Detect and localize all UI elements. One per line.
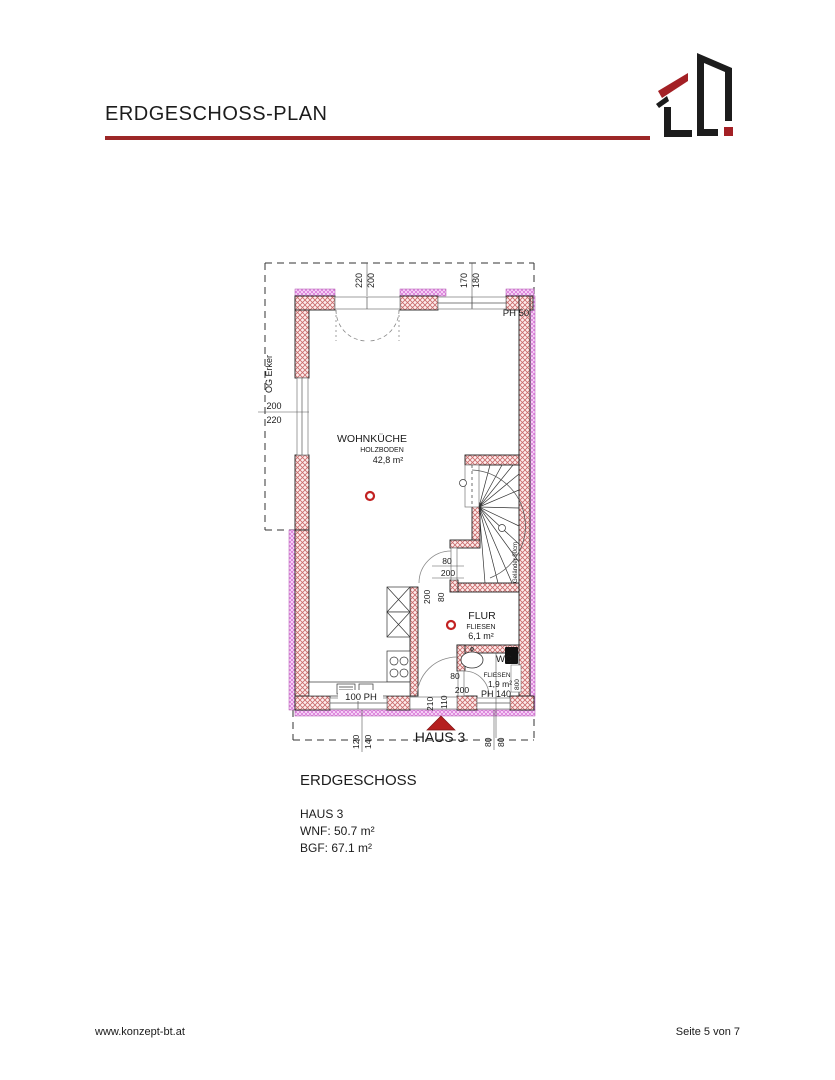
dim-wc-side: 800 xyxy=(514,679,521,690)
dim-bottom-4: 80 xyxy=(496,737,506,747)
title-rule xyxy=(105,136,650,140)
dim-top-win-2: 180 xyxy=(471,273,481,288)
logo-black-beam xyxy=(656,96,669,108)
dim-left-win-1: 200 xyxy=(266,401,281,411)
floor-plan: 220 200 170 180 PH 50 OG Erker 200 220 W… xyxy=(250,245,550,770)
entry-marker-triangle xyxy=(427,716,455,730)
dim-entry-2: 110 xyxy=(439,695,449,709)
dim-kitchen-ph: 100 PH xyxy=(345,692,377,703)
logo-red-beam xyxy=(658,73,688,98)
dim-bottom-3: 80 xyxy=(483,737,493,747)
room-flur-floor: FLIESEN xyxy=(466,624,495,631)
summary-bgf: BGF: 67.1 m² xyxy=(300,840,417,857)
room-wc-floor: FLIESEN xyxy=(483,672,510,679)
dim-top-door-1: 220 xyxy=(354,273,364,288)
room-flur-name: FLUR xyxy=(468,610,496,622)
logo-right-building xyxy=(697,53,732,136)
dim-bottom-1: 120 xyxy=(351,735,361,749)
summary-heading: ERDGESCHOSS xyxy=(300,772,417,789)
plan-summary: ERDGESCHOSS HAUS 3 WNF: 50.7 m² BGF: 67.… xyxy=(300,772,417,857)
summary-wnf: WNF: 50.7 m² xyxy=(300,823,417,840)
dim-top-win-1: 170 xyxy=(459,273,469,288)
kitchen-fixtures xyxy=(309,587,410,696)
logo-red-square xyxy=(724,127,733,136)
og-erker-label: OG Erker xyxy=(264,355,274,393)
dim-flur-door-h: 200 xyxy=(422,590,432,604)
room-wohnkueche-name: WOHNKÜCHE xyxy=(337,433,407,445)
logo-left-building xyxy=(664,107,692,137)
footer-page-number: Seite 5 von 7 xyxy=(676,1026,740,1038)
dim-stair-door-h: 200 xyxy=(441,568,455,578)
dim-wc-door-w: 80 xyxy=(450,671,460,681)
dim-bottom-2: 140 xyxy=(363,735,373,749)
dim-entry-1: 210 xyxy=(425,697,435,711)
company-logo-icon xyxy=(650,30,750,142)
room-wc-name: WC xyxy=(496,654,512,665)
dim-left-win-2: 220 xyxy=(266,415,281,425)
room-wc-area: 1,9 m² xyxy=(488,679,512,689)
dim-top-door-2: 200 xyxy=(366,273,376,288)
summary-haus: HAUS 3 xyxy=(300,806,417,823)
page-title: ERDGESCHOSS-PLAN xyxy=(105,103,328,126)
footer-website-link[interactable]: www.konzept-bt.at xyxy=(95,1026,185,1038)
house-label: HAUS 3 xyxy=(415,729,466,745)
dim-flur-door-w: 80 xyxy=(436,592,446,602)
outlet-symbol-flur xyxy=(447,621,455,629)
wc-sink xyxy=(461,652,483,668)
room-flur-area: 6,1 m² xyxy=(468,631,494,641)
gelaender-label: Geländer 90cm xyxy=(513,542,519,583)
dim-stair-door-w: 80 xyxy=(442,556,452,566)
dim-wc-door-h: 200 xyxy=(455,685,469,695)
room-wohnkueche-floor: HOLZBODEN xyxy=(360,447,404,454)
room-wohnkueche-area: 42,8 m² xyxy=(373,455,404,465)
dim-ph50: PH 50 xyxy=(503,308,529,319)
outlet-symbol-wohnkueche xyxy=(366,492,374,500)
dim-ph140: PH 140 xyxy=(481,689,511,699)
